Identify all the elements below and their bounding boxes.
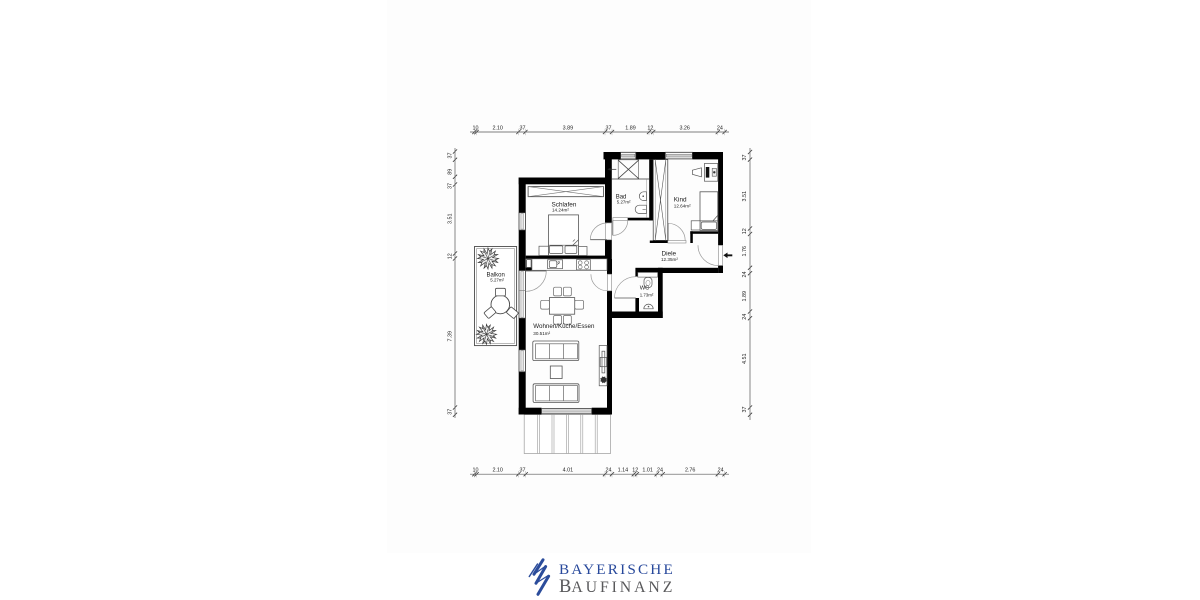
svg-text:12.64m²: 12.64m² (674, 203, 691, 208)
svg-text:3.51: 3.51 (742, 191, 748, 202)
svg-text:12.35m²: 12.35m² (661, 257, 678, 262)
svg-text:12: 12 (742, 228, 748, 234)
svg-text:4.01: 4.01 (563, 468, 574, 474)
svg-text:10: 10 (473, 126, 479, 132)
svg-text:3.26: 3.26 (679, 126, 690, 132)
svg-text:37: 37 (520, 468, 526, 474)
svg-text:1.89: 1.89 (625, 126, 636, 132)
svg-text:24: 24 (717, 126, 723, 132)
svg-text:Wohnen/Küche/Essen: Wohnen/Küche/Essen (533, 323, 595, 330)
svg-text:12: 12 (647, 126, 653, 132)
svg-text:BAYERISCHE: BAYERISCHE (559, 561, 675, 578)
svg-text:2.10: 2.10 (492, 126, 503, 132)
svg-text:24: 24 (742, 272, 748, 278)
svg-text:37: 37 (520, 126, 526, 132)
svg-text:3.51: 3.51 (448, 214, 454, 225)
svg-text:5.27m²: 5.27m² (490, 278, 504, 283)
svg-text:24: 24 (657, 468, 663, 474)
svg-text:37: 37 (448, 153, 454, 159)
svg-text:12: 12 (632, 468, 638, 474)
svg-text:BAUFINANZ: BAUFINANZ (559, 577, 675, 597)
svg-text:10: 10 (473, 468, 479, 474)
svg-text:89: 89 (448, 169, 454, 175)
svg-text:37: 37 (742, 407, 748, 413)
svg-text:24: 24 (742, 314, 748, 320)
svg-text:37: 37 (448, 183, 454, 189)
svg-text:37: 37 (606, 126, 612, 132)
svg-text:WC: WC (640, 286, 650, 292)
svg-text:24: 24 (606, 468, 612, 474)
svg-text:3.89: 3.89 (563, 126, 574, 132)
svg-text:2.76: 2.76 (685, 468, 696, 474)
svg-text:1.14: 1.14 (618, 468, 629, 474)
svg-text:37: 37 (448, 409, 454, 415)
svg-text:1.89: 1.89 (742, 291, 748, 302)
svg-text:1.73m²: 1.73m² (640, 293, 654, 298)
svg-text:1.76: 1.76 (742, 246, 748, 256)
svg-text:24: 24 (718, 468, 724, 474)
svg-text:14.24m²: 14.24m² (552, 207, 569, 212)
svg-text:30.51m²: 30.51m² (533, 331, 550, 336)
svg-text:37: 37 (742, 155, 748, 161)
svg-text:7.39: 7.39 (448, 331, 454, 342)
svg-text:2.10: 2.10 (492, 468, 503, 474)
svg-text:5.27m²: 5.27m² (617, 200, 631, 205)
svg-text:1.01: 1.01 (642, 468, 653, 474)
svg-text:12: 12 (448, 253, 454, 259)
svg-text:4.51: 4.51 (742, 354, 748, 365)
